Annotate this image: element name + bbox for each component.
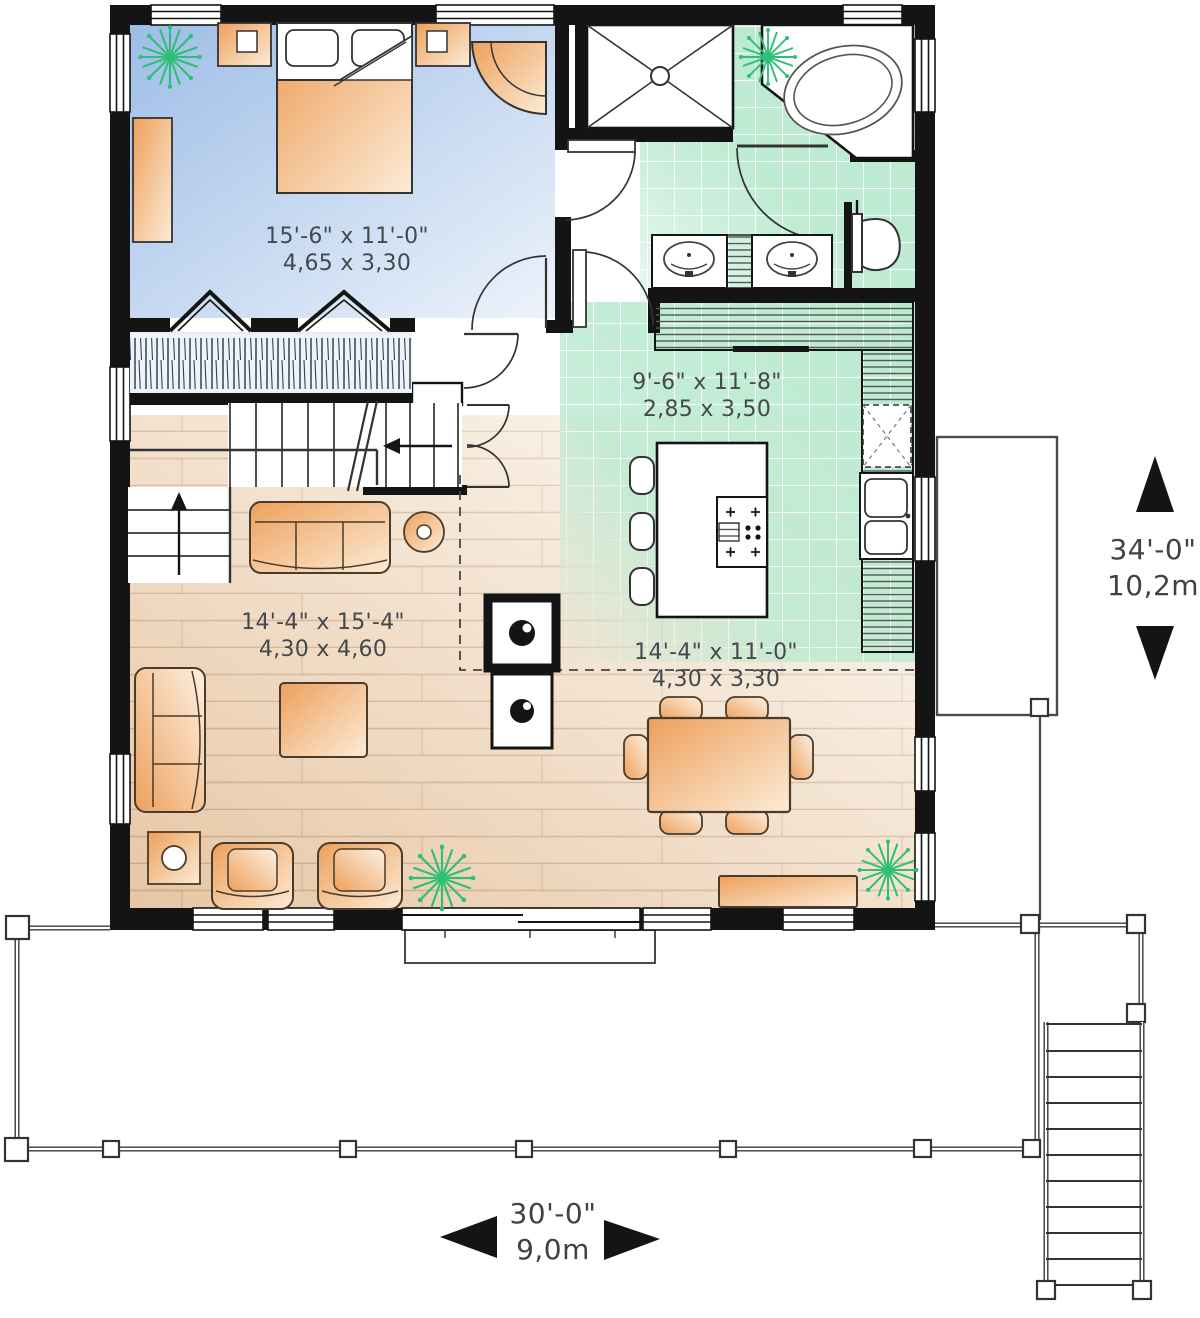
overall-width-label: 30'-0" 9,0m <box>509 1196 596 1269</box>
floor-plan: 15'-6" x 11'-0" 4,65 x 3,30 9'-6" x 11'-… <box>0 0 1200 1318</box>
plant-icon <box>409 845 476 912</box>
wall-stub <box>412 383 462 405</box>
kitchen-sink <box>860 473 913 559</box>
closet <box>130 334 412 393</box>
bedroom-dimension-label: 15'-6" x 11'-0" 4,65 x 3,30 <box>265 224 429 278</box>
kitchen-dimension-label: 9'-6" x 11'-8" 2,85 x 3,50 <box>632 370 781 424</box>
overall-depth-label: 34'-0" 10,2m <box>1107 532 1199 605</box>
bedroom-door <box>566 140 635 220</box>
round-side-table <box>404 512 444 552</box>
lamp-table <box>148 832 200 884</box>
depth-imperial: 34'-0" <box>1107 532 1199 568</box>
width-imperial: 30'-0" <box>509 1196 596 1232</box>
double-vanity <box>652 235 832 288</box>
living-dimension-label: 14'-4" x 15'-4" 4,30 x 4,60 <box>241 610 405 664</box>
arrow-left-icon <box>440 1216 497 1258</box>
floor-plan-drawing <box>0 0 1200 1318</box>
plant-icon <box>138 25 202 89</box>
arrow-right-icon <box>604 1220 660 1260</box>
deck-landing-step <box>405 930 655 963</box>
sofa <box>250 502 390 573</box>
plant-icon <box>739 28 797 86</box>
pillow <box>286 30 338 66</box>
dining-dim-metric: 4,30 x 3,30 <box>634 667 798 694</box>
bedroom-dim-metric: 4,65 x 3,30 <box>265 251 429 278</box>
plant-icon <box>858 840 919 901</box>
living-dim-metric: 4,30 x 4,60 <box>241 637 405 664</box>
dining-dim-imperial: 14'-4" x 11'-0" <box>634 640 798 667</box>
refrigerator <box>863 405 911 467</box>
dining-table <box>648 718 790 812</box>
armchair <box>318 843 402 909</box>
closet-door <box>464 334 518 388</box>
kitchen-dim-metric: 2,85 x 3,50 <box>632 397 781 424</box>
kitchen-island <box>630 443 767 617</box>
sideboard <box>719 876 857 907</box>
deck-bumpout <box>937 437 1057 715</box>
bedroom-dim-imperial: 15'-6" x 11'-0" <box>265 224 429 251</box>
bed <box>277 23 412 193</box>
kitchen-dim-imperial: 9'-6" x 11'-8" <box>632 370 781 397</box>
arrow-down-icon <box>1136 626 1174 680</box>
loveseat <box>135 668 205 812</box>
dining-dimension-label: 14'-4" x 11'-0" 4,30 x 3,30 <box>634 640 798 694</box>
shower-drain <box>651 67 669 85</box>
living-dim-imperial: 14'-4" x 15'-4" <box>241 610 405 637</box>
bar-stools <box>630 457 654 605</box>
coffee-table <box>280 683 367 757</box>
depth-metric: 10,2m <box>1107 568 1199 604</box>
armchair <box>212 843 293 909</box>
wood-stove <box>488 598 556 748</box>
deck-stairs <box>1037 1022 1151 1299</box>
arrow-up-icon <box>1136 456 1174 512</box>
width-metric: 9,0m <box>509 1232 596 1268</box>
dresser <box>133 118 172 242</box>
cooktop <box>717 497 767 567</box>
shower <box>587 25 733 128</box>
